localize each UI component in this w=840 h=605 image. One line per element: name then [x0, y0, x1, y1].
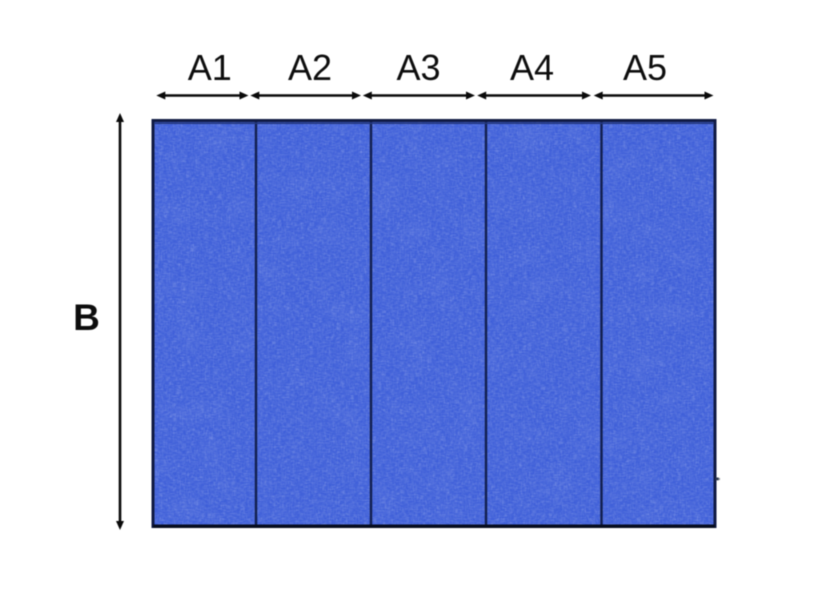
- svg-text:A1: A1: [188, 47, 232, 88]
- svg-text:A2: A2: [288, 47, 332, 88]
- svg-text:B: B: [73, 297, 100, 338]
- svg-text:A3: A3: [396, 47, 440, 88]
- svg-text:A4: A4: [510, 47, 554, 88]
- svg-text:A5: A5: [623, 47, 667, 88]
